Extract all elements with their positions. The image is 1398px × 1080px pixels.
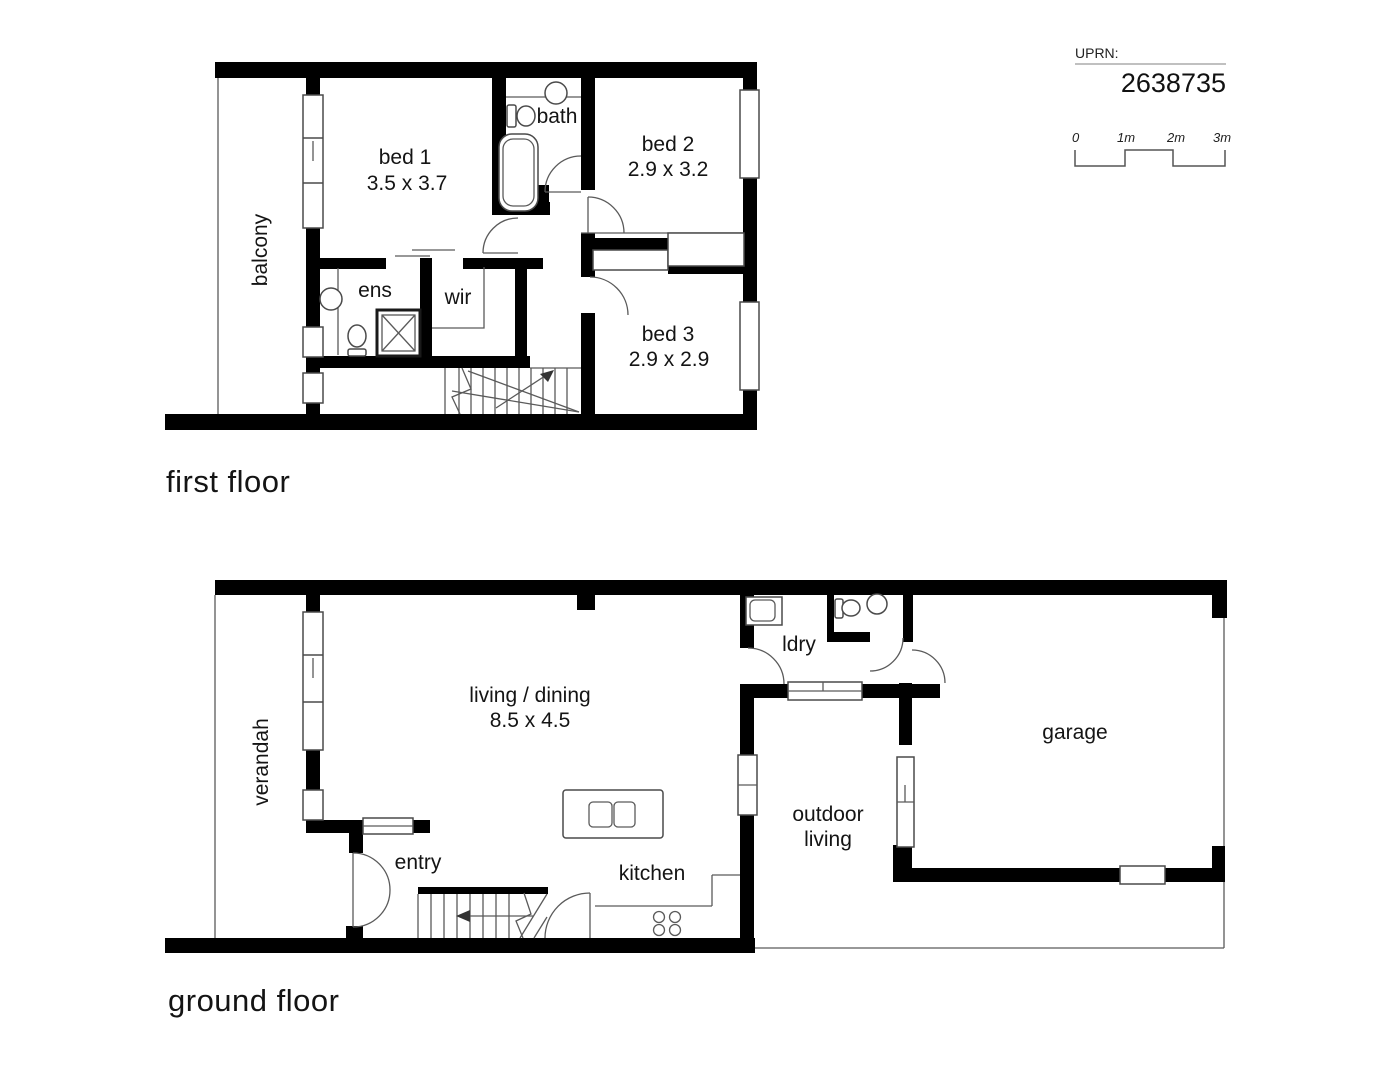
bath-toilet-icon [507, 105, 535, 127]
kitchen-label: kitchen [619, 862, 686, 885]
bath-door-arc [545, 156, 581, 192]
ens-label: ens [358, 279, 392, 302]
bed3-window [740, 302, 759, 390]
fixtures [563, 594, 887, 936]
garage-door-arc [912, 650, 945, 683]
scale-tick-2m: 2m [1166, 130, 1185, 145]
ens-window [303, 327, 323, 357]
garage-rear-window [1120, 866, 1165, 884]
bed3-label: bed 3 [642, 323, 695, 346]
bath-basin-icon [545, 82, 567, 104]
scale-tick-1m: 1m [1117, 130, 1135, 145]
bed2-door-arc [588, 197, 624, 233]
first-floor-plan: balcony bed 1 3.5 x 3.7 bath bed 2 2.9 x… [150, 40, 790, 460]
wc-door-arc [870, 638, 903, 671]
bed1-window [303, 95, 323, 228]
kitchen-island [563, 790, 663, 838]
ground-floor-plan: verandah living / dining 8.5 x 4.5 entry… [150, 555, 1240, 975]
outdoor-boundaries [215, 595, 1224, 948]
scale-bar: 0 1m 2m 3m [1072, 130, 1231, 166]
wir-label: wir [444, 286, 472, 309]
bed1-dimensions: 3.5 x 3.7 [367, 172, 448, 195]
bed2-robe [668, 233, 744, 266]
entry-french-doors [353, 853, 390, 927]
bed3-dimensions: 2.9 x 2.9 [629, 348, 710, 371]
entry-label: entry [395, 851, 442, 874]
bed2-label: bed 2 [642, 133, 695, 156]
bed3-door-arc [590, 277, 628, 315]
living-window [303, 612, 323, 750]
stairs-icon [418, 887, 548, 938]
verandah-label: verandah [250, 718, 273, 806]
bed3-robe [593, 250, 668, 270]
stairs-up-arrow [456, 910, 470, 922]
shower-icon [377, 310, 420, 356]
wc-basin-icon [867, 594, 887, 614]
bed1-label: bed 1 [379, 146, 432, 169]
living-window-low [303, 790, 323, 820]
uprn-label: UPRN: [1075, 45, 1119, 61]
living-dining-dimensions: 8.5 x 4.5 [490, 709, 571, 732]
balcony-label: balcony [249, 213, 272, 286]
garage-label: garage [1042, 721, 1107, 744]
living-dining-label: living / dining [469, 684, 590, 707]
landing-window [303, 373, 323, 403]
outdoor-living-label-line1: outdoor [792, 803, 863, 826]
laundry-trough-icon [746, 597, 782, 625]
hall-door-arc [483, 218, 518, 253]
windows [303, 612, 1165, 884]
stairs-icon [445, 368, 581, 414]
bed2-window [740, 90, 759, 178]
stair-door-arc [545, 893, 590, 938]
scale-tick-3m: 3m [1213, 130, 1231, 145]
bathtub-icon [499, 134, 538, 211]
scale-bar-steps-icon [1075, 150, 1225, 166]
ens-basin-icon [320, 288, 342, 310]
walls [165, 580, 1227, 953]
ldry-door-arc [748, 648, 784, 684]
ldry-label: ldry [782, 633, 816, 656]
scale-tick-0: 0 [1072, 130, 1080, 145]
bath-label: bath [537, 105, 578, 128]
ens-toilet-icon [348, 325, 366, 356]
stove-icon [654, 912, 681, 936]
stairs-up-arrow [540, 370, 554, 382]
bed2-dimensions: 2.9 x 3.2 [628, 158, 709, 181]
room-labels: verandah living / dining 8.5 x 4.5 entry… [250, 633, 1108, 885]
wc-toilet-icon [835, 599, 860, 618]
floorplan-page: UPRN: 2638735 0 1m 2m 3m [0, 0, 1398, 1080]
first-floor-title: first floor [166, 464, 290, 500]
outdoor-living-label-line2: living [804, 828, 852, 851]
uprn-value: 2638735 [1121, 68, 1226, 98]
ground-floor-title: ground floor [168, 983, 339, 1019]
uprn-scale-block: UPRN: 2638735 0 1m 2m 3m [1055, 38, 1240, 178]
